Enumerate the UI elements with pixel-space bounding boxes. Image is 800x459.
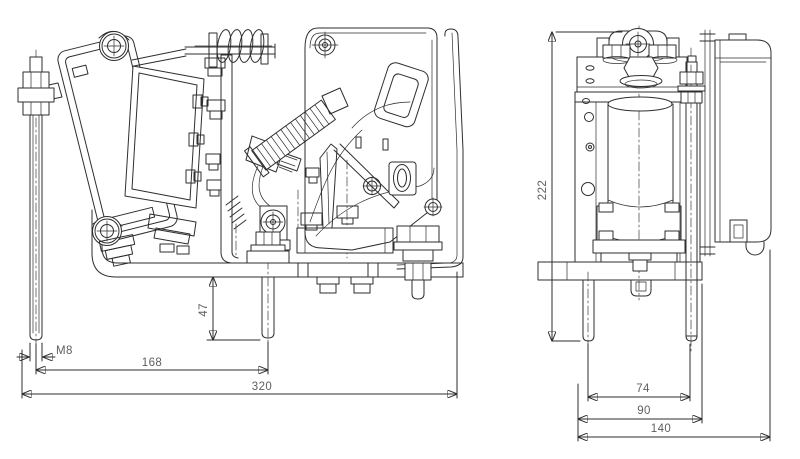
contact-block xyxy=(297,144,399,253)
chute-bolt-top xyxy=(312,32,338,58)
dimension-front-overall-width: 140 xyxy=(578,250,770,441)
dim-front-stud-spacing-label: 74 xyxy=(636,383,650,395)
mounting-stud-front-left xyxy=(583,280,594,341)
dimension-stud-protrusion: 47 xyxy=(198,277,260,340)
arc-chute-profile xyxy=(700,30,771,256)
chute-knob-terminal xyxy=(389,162,416,195)
dimension-thread: M8 xyxy=(17,343,73,361)
armature-plate xyxy=(205,55,238,263)
chute-handle xyxy=(372,61,430,129)
dim-thread-label: M8 xyxy=(56,345,73,357)
return-spring-assembly xyxy=(132,29,275,67)
drawing-canvas: 47 M8 168 320 xyxy=(0,0,800,459)
dim-height-label: 222 xyxy=(537,180,549,200)
dim-overall-width-label: 320 xyxy=(252,381,272,393)
coil-box-tilted xyxy=(44,31,208,268)
pivot-boss-bottom xyxy=(93,217,123,246)
dimensions-side-view: 47 M8 168 320 xyxy=(17,272,457,398)
dimension-overall-width: 320 xyxy=(22,272,457,398)
chute-bolt-mid xyxy=(363,177,381,195)
dim-front-overall-width-label: 140 xyxy=(651,423,671,435)
base-plate-front xyxy=(538,262,702,296)
contactor-two-view-drawing: 47 M8 168 320 xyxy=(0,0,800,459)
dim-stud-spacing-label: 168 xyxy=(142,357,162,369)
mounting-stud-front-right xyxy=(678,56,705,341)
dim-stud-protrusion-label: 47 xyxy=(198,303,210,317)
dimension-frame-width: 90 xyxy=(578,284,702,441)
side-view: 47 M8 168 320 xyxy=(17,28,463,398)
front-view: 222 74 90 140 xyxy=(537,26,771,441)
dim-frame-width-label: 90 xyxy=(637,405,651,417)
dimension-front-stud-spacing: 74 xyxy=(588,344,690,401)
pivot-boss-top xyxy=(99,31,129,60)
flexible-shunt xyxy=(245,88,348,210)
